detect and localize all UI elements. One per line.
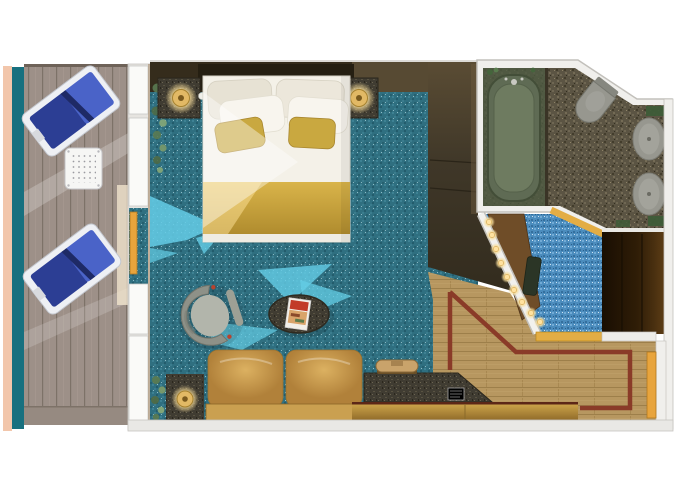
bed-shade	[341, 76, 350, 242]
bed	[203, 76, 350, 242]
window-panel	[129, 118, 148, 206]
counter-green-accent	[648, 216, 666, 226]
table-screw	[97, 184, 99, 186]
bottom-wall	[128, 420, 673, 431]
deck-top-edge	[24, 64, 130, 67]
table-screw	[97, 150, 99, 152]
bed-foot-strip	[203, 234, 350, 242]
tub-room-divider	[545, 68, 548, 206]
balcony	[3, 63, 130, 431]
bathtub-basin	[494, 84, 534, 192]
tub-plant	[494, 68, 499, 73]
closet	[602, 232, 666, 334]
tub-knob	[505, 78, 508, 81]
magazine-photo	[288, 310, 308, 325]
cabin-entry-door	[647, 352, 656, 418]
tub-plant	[487, 69, 493, 75]
phone-notch	[391, 361, 403, 366]
wall-panel	[129, 336, 148, 422]
sofa-front-rail	[206, 404, 364, 421]
table-screw	[67, 150, 69, 152]
floorplan-stage	[0, 0, 680, 485]
balcony-door-leaf	[130, 212, 137, 274]
magazine	[285, 298, 311, 331]
accent-pillow-gold	[288, 117, 336, 149]
wall-panel	[129, 66, 148, 114]
balcony-wall	[128, 64, 151, 430]
deck-seam	[24, 406, 130, 408]
counter-green-accent	[646, 106, 666, 116]
entry-top-wall	[602, 332, 656, 341]
sink-drain	[647, 192, 651, 196]
balcony-table	[65, 148, 102, 189]
deck-door-light	[117, 185, 128, 305]
deck-bottom-band	[24, 406, 130, 425]
tub-plant	[531, 68, 536, 73]
lamp-center	[178, 95, 184, 101]
entry-threshold-gold	[536, 332, 602, 341]
wall-panel	[129, 284, 148, 334]
table-screw	[67, 184, 69, 186]
telephone	[376, 360, 418, 374]
entry-right-wall	[656, 341, 666, 429]
lamp-center	[356, 95, 362, 101]
hull-strip	[3, 66, 12, 431]
lamp-center	[182, 396, 188, 402]
tub-faucet	[511, 79, 517, 85]
counter-green-accent	[616, 220, 630, 227]
floorplan-canvas	[0, 0, 680, 485]
tub-knob	[521, 78, 524, 81]
sink-drain	[647, 137, 651, 141]
table-perforations	[72, 155, 96, 183]
